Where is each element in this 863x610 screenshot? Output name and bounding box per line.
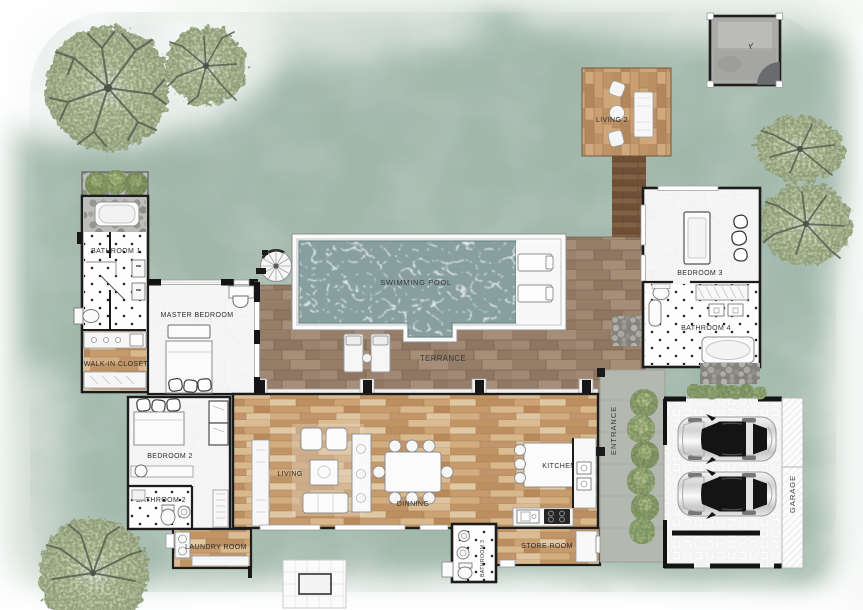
svg-text:LIVING: LIVING [277,471,302,478]
svg-text:SWIMMING POOL: SWIMMING POOL [380,278,452,287]
svg-text:STORE ROOM: STORE ROOM [521,543,573,550]
svg-text:BATHROOM 4: BATHROOM 4 [681,325,731,332]
svg-text:BEDROOM 2: BEDROOM 2 [147,453,193,460]
svg-text:TERRANCE: TERRANCE [420,354,466,363]
svg-text:DINNING: DINNING [397,501,429,508]
svg-text:ENTRANCE: ENTRANCE [609,406,618,455]
svg-text:BEDROOM 3: BEDROOM 3 [677,270,723,277]
svg-text:BATHROOM 1: BATHROOM 1 [91,248,141,255]
svg-text:GARAGE: GARAGE [788,475,797,513]
svg-text:BATHROOM 3: BATHROOM 3 [480,540,486,577]
svg-text:KITCHEN: KITCHEN [542,463,576,470]
svg-text:WALK-IN CLOSET: WALK-IN CLOSET [84,361,149,368]
svg-text:LIVING 2: LIVING 2 [596,117,628,124]
svg-text:MASTER BEDROOM: MASTER BEDROOM [161,312,234,319]
svg-text:LAUNDRY ROOM: LAUNDRY ROOM [185,544,247,551]
